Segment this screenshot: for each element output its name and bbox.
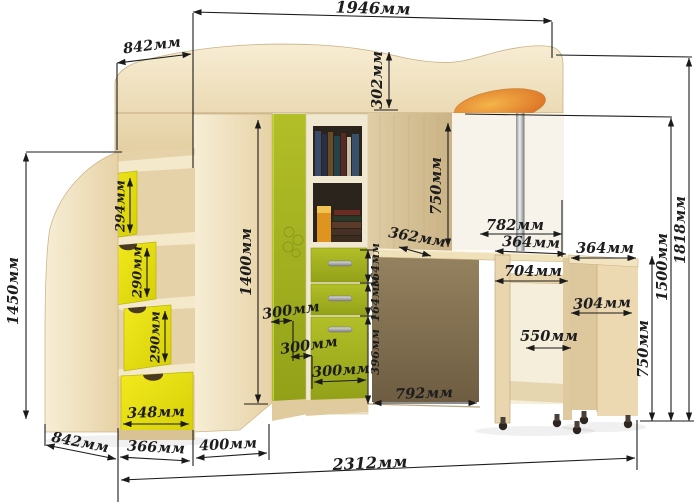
dim-294: 294мм xyxy=(114,178,131,233)
drawer-handle xyxy=(328,327,352,332)
dim-label-1946: 1946мм xyxy=(335,0,410,18)
wardrobe-plinth xyxy=(272,399,308,421)
dim-label-302: 302мм xyxy=(369,51,386,109)
dim-label-294: 294мм xyxy=(114,180,129,233)
drawer-handle xyxy=(328,296,352,301)
dim-290-b: 290мм xyxy=(149,311,166,364)
dim-364-shelf: 364мм xyxy=(571,240,636,258)
dim-label-792: 792мм xyxy=(395,384,453,403)
dim-label-400: 400мм xyxy=(199,434,258,454)
dim-290-a: 290мм xyxy=(131,246,148,299)
rolling-shelf-unit xyxy=(569,255,638,428)
dim-label-550: 550мм xyxy=(520,328,578,345)
stair-front-panel xyxy=(45,152,118,432)
dim-label-782: 782мм xyxy=(486,217,544,234)
bookshelf-opening-bottom xyxy=(313,183,362,242)
dim-label-396: 396мм xyxy=(368,329,382,375)
dim-label-290-b: 290мм xyxy=(149,311,164,364)
dim-label-290-a: 290мм xyxy=(131,246,146,299)
dim-304: 304мм xyxy=(571,294,632,313)
furniture-dimension-diagram: 1946мм 842мм 302мм 1450мм 294мм 290мм 29… xyxy=(0,0,700,502)
dim-label-364-shelf: 364мм xyxy=(576,240,634,257)
dim-label-1400: 1400мм xyxy=(238,228,255,296)
wardrobe-side-panel xyxy=(193,114,272,432)
dim-label-364-desk: 364мм xyxy=(502,233,560,252)
dim-label-750-left: 750мм xyxy=(428,157,445,215)
dim-label-164-b: 164мм xyxy=(368,276,382,322)
dim-label-2312: 2312мм xyxy=(331,452,408,474)
dim-label-1450: 1450мм xyxy=(5,257,22,325)
under-desk-shadow-area xyxy=(372,256,479,402)
drawer-handle xyxy=(328,261,352,266)
shelf-front-face xyxy=(597,263,638,416)
wardrobe-door xyxy=(272,114,308,401)
dim-label-304: 304мм xyxy=(573,294,631,313)
cart-left-panel xyxy=(495,255,510,423)
dim-label-1818: 1818мм xyxy=(672,196,689,264)
dim-label-366: 366мм xyxy=(127,437,186,457)
dim-label-348: 348мм xyxy=(127,403,185,422)
dim-label-1500: 1500мм xyxy=(654,233,671,301)
step-drawer-3 xyxy=(124,305,171,371)
dim-364-desk: 364мм xyxy=(495,233,566,254)
bookshelf-opening-top xyxy=(313,126,362,176)
dim-label-704: 704мм xyxy=(504,263,562,280)
dim-704: 704мм xyxy=(495,263,568,281)
cart-lower-shelf xyxy=(509,381,566,403)
diagram-canvas: 1946мм 842мм 302мм 1450мм 294мм 290мм 29… xyxy=(0,0,700,502)
dim-label-750-right: 750мм xyxy=(635,320,652,378)
